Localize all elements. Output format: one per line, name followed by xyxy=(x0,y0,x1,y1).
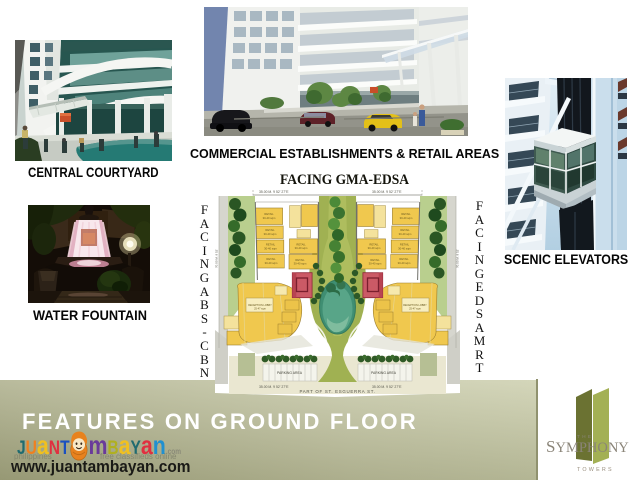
svg-text:RETAIL: RETAIL xyxy=(264,212,274,216)
svg-text:30-40 sqm: 30-40 sqm xyxy=(369,262,382,266)
svg-text:30-40 sqm: 30-40 sqm xyxy=(264,232,277,236)
svg-text:35.00 M. 9 52' 27"E: 35.00 M. 9 52' 27"E xyxy=(372,385,402,389)
svg-text:30-40 sqm: 30-40 sqm xyxy=(398,261,411,265)
svg-text:70.00 M. 9 52': 70.00 M. 9 52' xyxy=(456,249,460,268)
svg-text:RETAIL: RETAIL xyxy=(401,212,411,216)
svg-text:RETAIL: RETAIL xyxy=(295,258,305,262)
svg-text:RETAIL: RETAIL xyxy=(400,243,410,247)
svg-text:30-40 sqm: 30-40 sqm xyxy=(294,262,307,266)
svg-text:RETAIL: RETAIL xyxy=(265,228,275,232)
svg-text:RETAIL: RETAIL xyxy=(399,257,409,261)
svg-text:SYMPHONY: SYMPHONY xyxy=(546,437,629,456)
svg-text:30-40 sqm: 30-40 sqm xyxy=(263,216,276,220)
svg-text:30-40 sqm: 30-40 sqm xyxy=(264,247,277,251)
svg-text:RETAIL: RETAIL xyxy=(370,258,380,262)
svg-text:TOWERS: TOWERS xyxy=(577,467,614,473)
svg-text:30-40 sqm: 30-40 sqm xyxy=(295,246,308,250)
svg-text:35.00 M. 9 52' 27"E: 35.00 M. 9 52' 27"E xyxy=(259,385,289,389)
svg-text:RETAIL: RETAIL xyxy=(400,228,410,232)
svg-text:RETAIL: RETAIL xyxy=(369,243,379,247)
svg-text:PART OF ST. ESGUERRA ST.: PART OF ST. ESGUERRA ST. xyxy=(299,389,375,394)
svg-text:PARKING AREA: PARKING AREA xyxy=(277,371,303,375)
svg-text:PARKING AREA: PARKING AREA xyxy=(371,371,397,375)
svg-text:THE: THE xyxy=(577,434,593,439)
svg-text:30-40 sqm: 30-40 sqm xyxy=(368,246,381,250)
svg-text:25-47 sqm: 25-47 sqm xyxy=(409,308,421,311)
svg-text:RETAIL: RETAIL xyxy=(266,243,276,247)
svg-text:35.00 M. 9 52' 27"E: 35.00 M. 9 52' 27"E xyxy=(372,190,402,194)
svg-text:25-47 sqm: 25-47 sqm xyxy=(254,308,266,311)
svg-text:RETAIL: RETAIL xyxy=(296,243,306,247)
svg-text:30-40 sqm: 30-40 sqm xyxy=(399,232,412,236)
svg-text:RETAIL: RETAIL xyxy=(266,257,276,261)
svg-text:30-40 sqm: 30-40 sqm xyxy=(398,247,411,251)
svg-text:35.00 M. 9 52' 27"E: 35.00 M. 9 52' 27"E xyxy=(259,190,289,194)
svg-text:30-40 sqm: 30-40 sqm xyxy=(265,261,278,265)
svg-text:30-40 sqm: 30-40 sqm xyxy=(400,216,413,220)
